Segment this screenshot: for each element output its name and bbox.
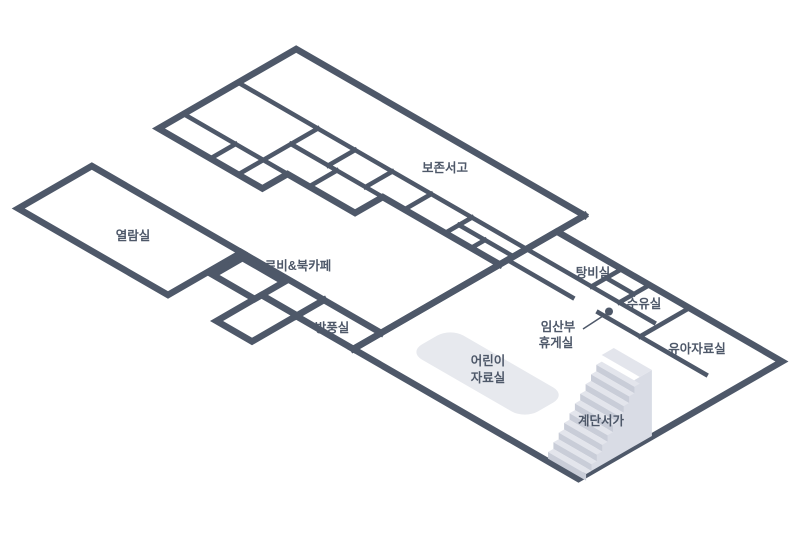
- room-label-preservation-stacks: 보존서고: [422, 160, 469, 175]
- entry-porch-lower: [217, 295, 298, 342]
- floor-plan-canvas: 보존서고 열람실 로비&북카페 방풍실 탕비실 수유실 임산부 휴게실 유아자료…: [0, 0, 800, 533]
- isometric-plan: [18, 49, 800, 506]
- room-label-pregnant-lounge-line2: 휴게실: [539, 335, 574, 350]
- exterior-walls: [18, 49, 800, 506]
- room-label-nursing-room: 수유실: [627, 296, 662, 311]
- room-label-children-materials-line1: 어린이: [471, 353, 506, 368]
- room-label-infant-materials: 유아자료실: [668, 341, 726, 356]
- room-label-children-materials-line2: 자료실: [471, 370, 506, 385]
- room-label-windbreak-room: 방풍실: [315, 320, 350, 335]
- floor-plan-page: 보존서고 열람실 로비&북카페 방풍실 탕비실 수유실 임산부 휴게실 유아자료…: [0, 0, 800, 533]
- room-label-stair-bookshelf: 계단서가: [578, 413, 625, 428]
- leader-line: [583, 314, 606, 329]
- room-label-pantry: 탕비실: [576, 265, 611, 280]
- room-label-lobby-bookcafe: 로비&북카페: [265, 258, 332, 273]
- stacks-building-outline: [158, 49, 584, 295]
- room-label-reading-room: 열람실: [116, 228, 151, 243]
- windbreak-left-wall: [296, 300, 324, 316]
- leader-dot: [605, 308, 613, 316]
- room-label-pregnant-lounge-line1: 임산부: [541, 319, 576, 334]
